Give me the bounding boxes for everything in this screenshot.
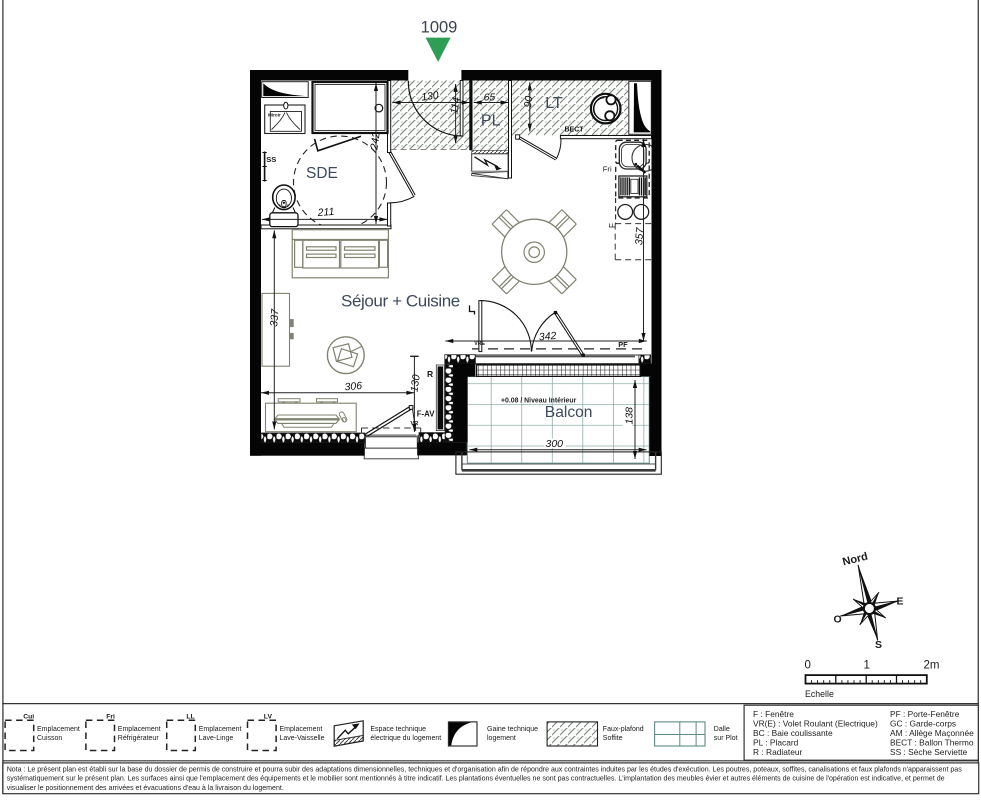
- svg-text:Miroir: Miroir: [268, 113, 281, 118]
- svg-text:1009: 1009: [421, 19, 458, 37]
- svg-text:342: 342: [538, 330, 557, 343]
- svg-text:Balcon: Balcon: [545, 404, 593, 421]
- svg-text:Fri: Fri: [603, 165, 612, 174]
- svg-text:114: 114: [448, 96, 462, 114]
- svg-text:SS: SS: [266, 155, 276, 164]
- svg-text:R: R: [427, 369, 433, 379]
- svg-text:357: 357: [633, 226, 646, 245]
- svg-text:Cui: Cui: [23, 713, 34, 720]
- svg-text:90: 90: [522, 95, 536, 108]
- svg-text:65: 65: [484, 92, 496, 104]
- svg-text:130: 130: [408, 374, 422, 393]
- svg-text:300: 300: [546, 438, 564, 450]
- svg-text:138: 138: [624, 407, 636, 425]
- svg-text:F-AV: F-AV: [417, 409, 435, 418]
- svg-text:F: F: [608, 223, 617, 228]
- svg-text:211: 211: [316, 206, 335, 219]
- svg-text:LL: LL: [186, 713, 194, 720]
- svg-text:LT: LT: [545, 95, 563, 112]
- svg-text:Echelle: Echelle: [805, 689, 834, 699]
- svg-text:VRE: VRE: [474, 341, 485, 347]
- svg-text:E: E: [897, 596, 904, 608]
- svg-text:SDE: SDE: [306, 165, 338, 182]
- svg-text:LV: LV: [264, 713, 273, 720]
- svg-text:BECT: BECT: [565, 127, 585, 134]
- svg-text:306: 306: [344, 380, 363, 393]
- svg-text:PL: PL: [481, 113, 501, 130]
- svg-text:0: 0: [805, 660, 811, 672]
- svg-text:130: 130: [420, 89, 439, 103]
- svg-text:Séjour + Cuisine: Séjour + Cuisine: [341, 292, 460, 311]
- svg-text:1: 1: [864, 660, 870, 672]
- svg-text:O: O: [834, 614, 842, 626]
- svg-text:337: 337: [268, 308, 281, 327]
- svg-text:S: S: [875, 639, 882, 651]
- svg-text:2m: 2m: [924, 660, 940, 672]
- svg-text:Fri: Fri: [106, 713, 115, 720]
